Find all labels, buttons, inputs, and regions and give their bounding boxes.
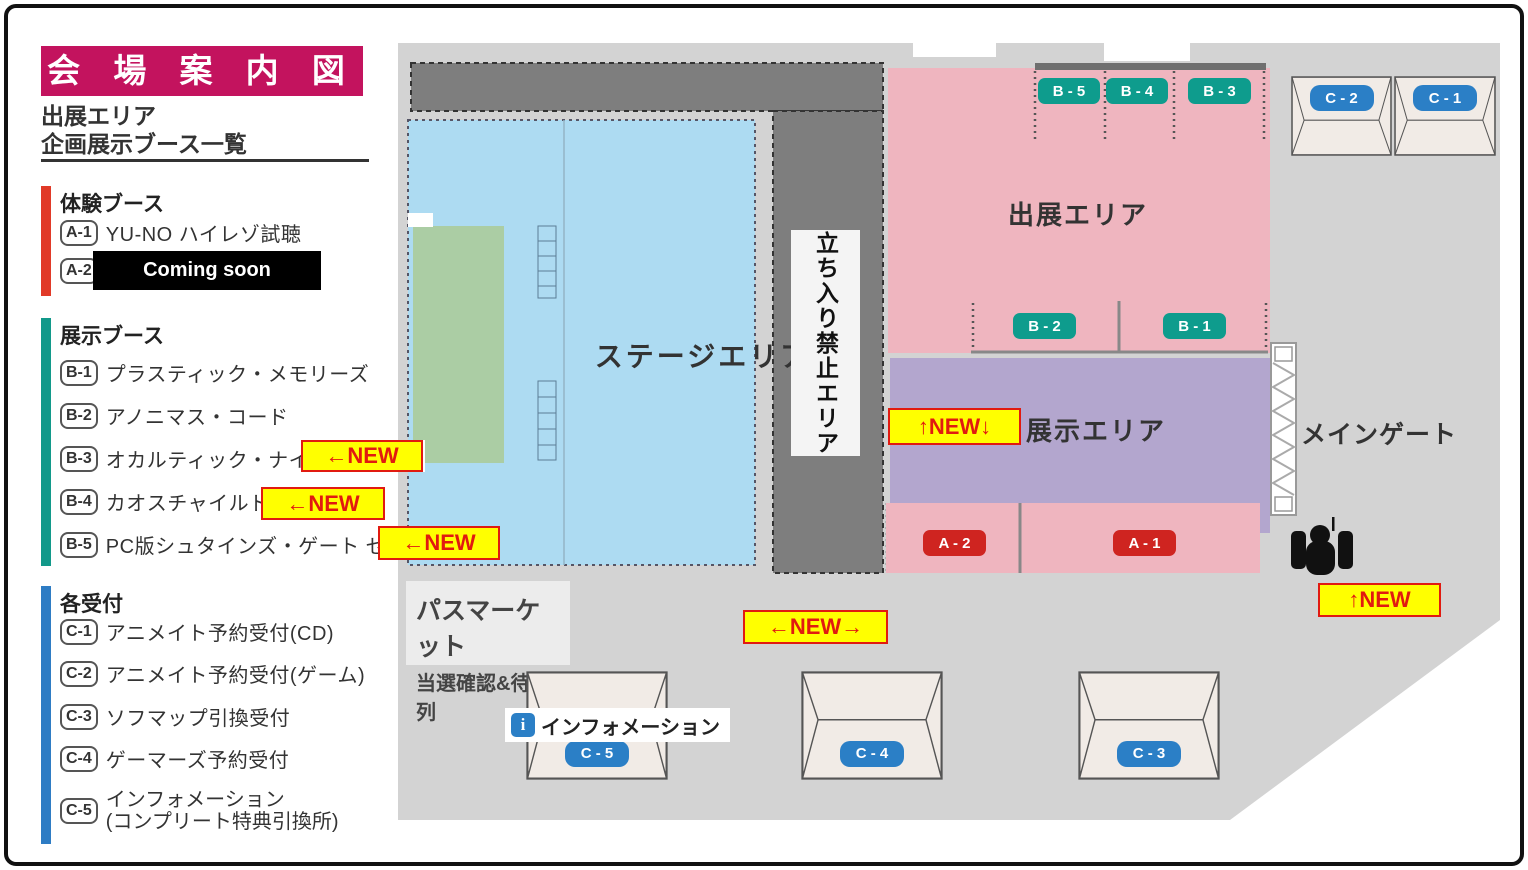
information-text: インフォメーション [541, 711, 720, 740]
booth-c3: C - 3 [1078, 671, 1220, 780]
label-c5-line1: インフォメーション [106, 789, 339, 811]
legend-item-c2: C-2 アニメイト予約受付(ゲーム) [60, 659, 365, 688]
map-badge-c4: C - 4 [840, 741, 904, 767]
booth-c2: C - 2 [1291, 76, 1392, 156]
label-b2: アノニマス・コード [106, 401, 289, 430]
reception-section-header: 各受付 [60, 588, 123, 618]
label-c2: アニメイト予約受付(ゲーム) [106, 659, 365, 688]
code-badge-c4: C-4 [60, 746, 98, 772]
pass-market-box: パスマーケット 当選確認&待機列 [406, 581, 570, 665]
map-badge-c1: C - 1 [1413, 85, 1477, 111]
label-c4: ゲーマーズ予約受付 [106, 744, 290, 773]
new-label-gate: ↑NEW [1318, 583, 1441, 617]
experience-section-header: 体験ブース [60, 188, 164, 218]
experience-section-bar [41, 186, 51, 296]
label-c1: アニメイト予約受付(CD) [106, 617, 334, 646]
legend-item-c4: C-4 ゲーマーズ予約受付 [60, 744, 289, 773]
information-label: i インフォメーション [505, 708, 730, 742]
code-badge-b1: B-1 [60, 360, 98, 386]
label-a1: YU-NO ハイレゾ試聴 [106, 218, 302, 247]
map-badge-b3: B - 3 [1188, 78, 1251, 104]
subtitle-line1: 出展エリア [41, 102, 247, 130]
page-title: 会 場 案 内 図 [41, 46, 363, 96]
new-label-b5: ←NEW [378, 526, 500, 560]
map-badge-c3: C - 3 [1117, 741, 1181, 767]
main-gate-truss [1271, 343, 1296, 515]
reception-section-bar [41, 586, 51, 844]
code-badge-c1: C-1 [60, 619, 98, 645]
label-b3: オカルティック・ナイン [106, 444, 330, 473]
exhibit-section-header: 展示ブース [60, 320, 164, 350]
legend-item-a1: A-1 YU-NO ハイレゾ試聴 [60, 218, 301, 247]
legend-item-b3: B-3 オカルティック・ナイン [60, 444, 330, 473]
code-badge-b4: B-4 [60, 489, 98, 515]
exhibition-area-label: 出展エリア [958, 195, 1198, 232]
exhibit-section-bar [41, 318, 51, 566]
map-badge-c2: C - 2 [1310, 85, 1374, 111]
label-c5: インフォメーション (コンプリート特典引換所) [106, 789, 339, 833]
map-badge-c5: C - 5 [565, 741, 629, 767]
map-badge-b2: B - 2 [1013, 313, 1076, 339]
code-badge-b2: B-2 [60, 403, 98, 429]
legend-item-b5: B-5 PC版シュタインズ・ゲート ゼロ [60, 530, 407, 559]
label-b1: プラスティック・メモリーズ [106, 358, 370, 387]
page-subtitle: 出展エリア 企画展示ブース一覧 [41, 102, 247, 158]
map-badge-a2: A - 2 [923, 530, 986, 556]
map-badge-b5: B - 5 [1038, 78, 1100, 104]
subtitle-underline [41, 159, 369, 162]
label-c5-line2: (コンプリート特典引換所) [106, 811, 339, 833]
label-b5: PC版シュタインズ・ゲート ゼロ [106, 530, 407, 559]
new-label-b3: ←NEW [301, 440, 423, 472]
new-label-mid-bottom: ←NEW→ [743, 610, 888, 644]
code-badge-a1: A-1 [60, 220, 98, 246]
coming-soon-box: Coming soon [93, 251, 321, 290]
booth-c1: C - 1 [1394, 76, 1496, 156]
map-badge-b4: B - 4 [1106, 78, 1168, 104]
legend-item-b2: B-2 アノニマス・コード [60, 401, 288, 430]
display-area-label: 展示エリア [1026, 411, 1166, 448]
label-b4: カオスチャイルド [106, 487, 270, 516]
new-label-display-area: ↑NEW↓ [888, 408, 1021, 445]
legend-item-c5: C-5 インフォメーション (コンプリート特典引換所) [60, 789, 339, 833]
legend-item-c3: C-3 ソフマップ引換受付 [60, 702, 290, 731]
code-badge-b5: B-5 [60, 532, 98, 558]
legend-item-b4: B-4 カオスチャイルド [60, 487, 270, 516]
code-badge-b3: B-3 [60, 446, 98, 472]
map-badge-b1: B - 1 [1163, 313, 1226, 339]
label-c3: ソフマップ引換受付 [106, 702, 291, 731]
code-badge-c5: C-5 [60, 798, 98, 824]
code-badge-c3: C-3 [60, 704, 98, 730]
code-badge-c2: C-2 [60, 661, 98, 687]
booth-c4: C - 4 [801, 671, 943, 780]
legend-item-c1: C-1 アニメイト予約受付(CD) [60, 617, 334, 646]
pass-market-line1: パスマーケット [416, 591, 562, 663]
new-label-b4: ←NEW [261, 487, 385, 520]
main-gate-label: メインゲート [1301, 415, 1457, 451]
venue-floor-map: ステージエリア 立ち入り禁止エリア 出展エリア 展示エリア メインゲート パスマ… [398, 43, 1500, 820]
venue-map-page: 会 場 案 内 図 出展エリア 企画展示ブース一覧 体験ブース A-1 YU-N… [4, 4, 1524, 866]
legend-item-b1: B-1 プラスティック・メモリーズ [60, 358, 369, 387]
info-icon: i [511, 713, 535, 737]
no-entry-area-label: 立ち入り禁止エリア [791, 230, 860, 456]
map-badge-a1: A - 1 [1113, 530, 1176, 556]
subtitle-line2: 企画展示ブース一覧 [41, 130, 247, 158]
